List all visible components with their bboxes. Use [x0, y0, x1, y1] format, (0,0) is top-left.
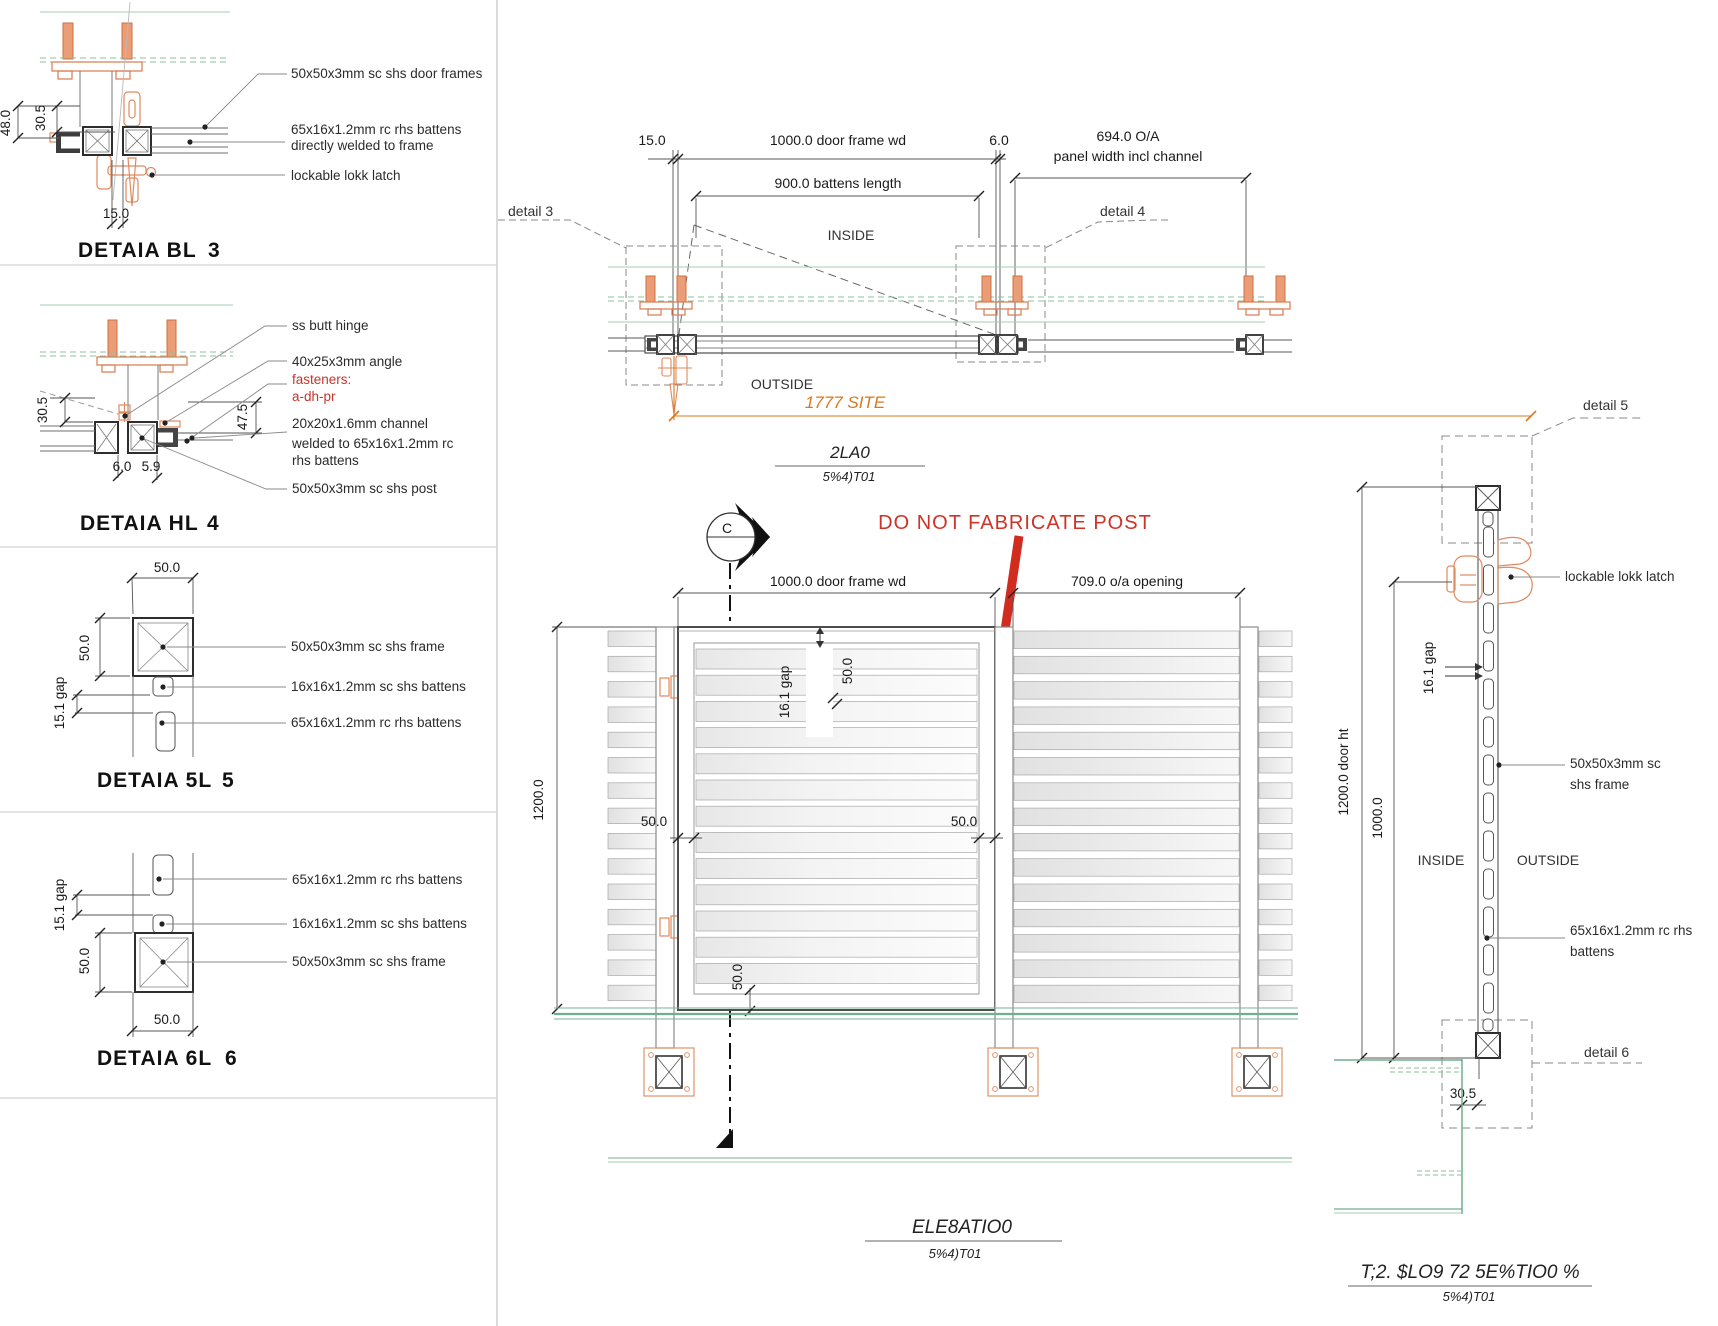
plan-dim-oa-2: panel width incl channel: [1054, 148, 1203, 164]
side-floor-profile: [1334, 1059, 1462, 1214]
detail4-dim-6: 6.0: [113, 459, 132, 474]
side-label-battens-2: battens: [1570, 944, 1615, 959]
detail5-dim-gap: 15.1 gap: [52, 677, 67, 730]
detail4-slab-lines: [40, 352, 233, 356]
detail6-label-shs: 16x16x1.2mm sc shs battens: [292, 916, 467, 931]
elevation-view: C DO NOT FABRICATE POST 1000.0 door fram…: [531, 503, 1298, 1261]
middle-post: [995, 627, 1013, 1048]
elevation-dim-50-left: 50.0: [641, 814, 667, 829]
detail6-dim-gap: 15.1 gap: [52, 879, 67, 932]
detail4-title: DETAIA HL: [80, 512, 199, 535]
plan-dim-15: 15.0: [638, 132, 665, 148]
side-detail5-ref: detail 5: [1583, 397, 1628, 413]
plan-site-dim: 1777 SITE: [805, 393, 886, 412]
detail3-dim-15: 15.0: [103, 206, 129, 221]
side-title: T;2. $LO9 72 5E%TIO0 %: [1360, 1262, 1579, 1283]
side-frame-tube: [1476, 486, 1500, 1079]
plan-post-plates: [640, 302, 1290, 315]
detail5-dim-w: 50.0: [154, 560, 180, 575]
elevation-dim-50-bottom: 50.0: [730, 964, 745, 990]
detail-5-view: 50.0 50.0 15.1 gap 50x50x3mm sc shs fram…: [52, 560, 466, 792]
right-post: [1240, 627, 1258, 1048]
detail5-label-rhs: 65x16x1.2mm rc rhs battens: [291, 715, 462, 730]
post-footings: [644, 1048, 1282, 1096]
plan-inside-label: INSIDE: [828, 227, 875, 243]
detail5-number: 5: [222, 769, 235, 792]
elevation-dim-frame: 1000.0 door frame wd: [770, 573, 906, 589]
detail4-label-channel-1: 20x20x1.6mm channel: [292, 416, 428, 431]
detail3-base-plate: [52, 62, 142, 79]
plan-dim-6: 6.0: [989, 132, 1009, 148]
detail-6-view: 15.1 gap 50.0 50.0 65x16x1.2mm rc rhs ba…: [52, 853, 467, 1070]
side-dim-lines: [1362, 487, 1477, 1058]
detail5-rhs-batten: [156, 712, 175, 751]
plan-view: 15.0 1000.0 door frame wd 6.0 694.0 O/A …: [498, 128, 1536, 484]
plan-detail3-ref: detail 3: [508, 203, 553, 219]
plan-frame-box-x: [657, 335, 1263, 354]
elevation-dim-height: 1200.0: [531, 779, 546, 820]
detail4-frame-boxes: [95, 422, 157, 453]
detail4-label-channel-2: welded to 65x16x1.2mm rc: [291, 436, 454, 451]
plan-outside-label: OUTSIDE: [751, 376, 813, 392]
plan-title: 2LA0: [829, 443, 870, 462]
elevation-title: ELE8ATIO0: [912, 1217, 1012, 1238]
detail3-dim-48: 48.0: [0, 110, 13, 136]
detail4-dim-305: 30.5: [35, 397, 50, 423]
detail4-label-post: 50x50x3mm sc shs post: [292, 481, 437, 496]
section-marker-icon: C: [707, 503, 770, 571]
detail5-dim-h: 50.0: [77, 635, 92, 661]
detail3-label-battens-1: 65x16x1.2mm rc rhs battens: [291, 122, 462, 137]
detail4-base-plate: [97, 357, 187, 372]
detail-3-view: 48.0 30.5 15.0 50x50x3mm sc shs door fra…: [0, 2, 483, 262]
detail4-dim-59: 5.9: [142, 459, 161, 474]
side-gap-arrows: [1445, 663, 1483, 680]
drawing-sheet: 48.0 30.5 15.0 50x50x3mm sc shs door fra…: [0, 0, 1718, 1326]
side-outside-label: OUTSIDE: [1517, 852, 1579, 868]
detail6-label-frame: 50x50x3mm sc shs frame: [292, 954, 446, 969]
side-dim-gap: 16.1 gap: [1421, 642, 1436, 695]
detail4-label-angle: 40x25x3mm angle: [292, 354, 402, 369]
elevation-dim-50-right: 50.0: [951, 814, 977, 829]
detail4-label-fasteners-2: a-dh-pr: [292, 389, 336, 404]
plan-post-hardware: [646, 276, 1285, 302]
detail3-anchor-bolts: [63, 23, 132, 59]
detail3-label-latch: lockable lokk latch: [291, 168, 401, 183]
side-section-view: detail 5 detail 6: [1334, 397, 1693, 1304]
side-label-battens-1: 65x16x1.2mm rc rhs: [1570, 923, 1693, 938]
detail6-number: 6: [225, 1047, 238, 1070]
detail6-label-rhs: 65x16x1.2mm rc rhs battens: [292, 872, 463, 887]
plan-dim-battens: 900.0 battens length: [775, 175, 902, 191]
elevation-dim-50-top: 50.0: [840, 658, 855, 684]
side-label-frame-2: shs frame: [1570, 777, 1629, 792]
side-label-latch: lockable lokk latch: [1565, 569, 1675, 584]
plan-detail4-ref: detail 4: [1100, 203, 1145, 219]
plan-detail-callouts: [498, 220, 1168, 385]
detail5-label-shs: 16x16x1.2mm sc shs battens: [291, 679, 466, 694]
door-leaf: [678, 627, 995, 1010]
side-dim-1000: 1000.0: [1370, 797, 1385, 838]
panel-dividers: [0, 0, 497, 1326]
side-inside-label: INSIDE: [1418, 852, 1465, 868]
do-not-fabricate-warning: DO NOT FABRICATE POST: [878, 512, 1152, 534]
detail6-title: DETAIA 6L: [97, 1047, 212, 1070]
side-detail-callouts: [1442, 418, 1642, 1128]
section-marker-letter: C: [722, 520, 732, 536]
plan-scale: 5%4)T01: [823, 469, 876, 484]
detail4-channel: [158, 428, 178, 447]
plan-dim-lines: [648, 150, 1246, 336]
side-dim-305: 30.5: [1450, 1086, 1476, 1101]
detail6-dim-w: 50.0: [154, 1012, 180, 1027]
detail-4-view: 30.5 47.5 6.0 5.9 ss butt hinge 40x25x3m…: [35, 305, 454, 535]
detail3-label-door-frames: 50x50x3mm sc shs door frames: [291, 66, 483, 81]
detail4-label-fasteners-1: fasteners:: [292, 372, 351, 387]
detail4-dim-475: 47.5: [235, 404, 250, 430]
detail4-label-channel-3: rhs battens: [292, 453, 359, 468]
side-label-frame-1: 50x50x3mm sc: [1570, 756, 1661, 771]
detail4-label-hinge: ss butt hinge: [292, 318, 369, 333]
plan-dim-oa-1: 694.0 O/A: [1096, 128, 1160, 144]
detail3-title: DETAIA BL: [78, 239, 197, 262]
detail3-label-battens-2: directly welded to frame: [291, 138, 434, 153]
elevation-dim-opening: 709.0 o/a opening: [1071, 573, 1183, 589]
plan-dim-frame: 1000.0 door frame wd: [770, 132, 906, 148]
side-scale: 5%4)T01: [1443, 1289, 1496, 1304]
detail3-number: 3: [208, 239, 221, 262]
detail6-dim-h: 50.0: [77, 948, 92, 974]
detail4-number: 4: [207, 512, 220, 535]
elevation-dim-gap: 16.1 gap: [777, 666, 792, 719]
detail3-leaders: [154, 74, 287, 175]
detail6-rhs-batten: [153, 855, 173, 895]
detail5-label-frame: 50x50x3mm sc shs frame: [291, 639, 445, 654]
detail5-title: DETAIA 5L: [97, 769, 212, 792]
fence-right-slats: [1259, 631, 1292, 1001]
elevation-scale: 5%4)T01: [929, 1246, 982, 1261]
side-detail6-ref: detail 6: [1584, 1044, 1629, 1060]
plan-slab-lines: [608, 267, 1265, 322]
opening-slats: [1014, 631, 1239, 1003]
cad-drawing-canvas: 48.0 30.5 15.0 50x50x3mm sc shs door fra…: [0, 0, 1718, 1326]
detail3-channel: [56, 132, 80, 153]
side-dim-height: 1200.0 door ht: [1336, 728, 1351, 815]
detail3-dim-305: 30.5: [33, 105, 48, 131]
side-leaders: [1490, 577, 1565, 938]
plan-rail: [608, 336, 1292, 353]
plan-frame-boxes: [657, 335, 1263, 354]
